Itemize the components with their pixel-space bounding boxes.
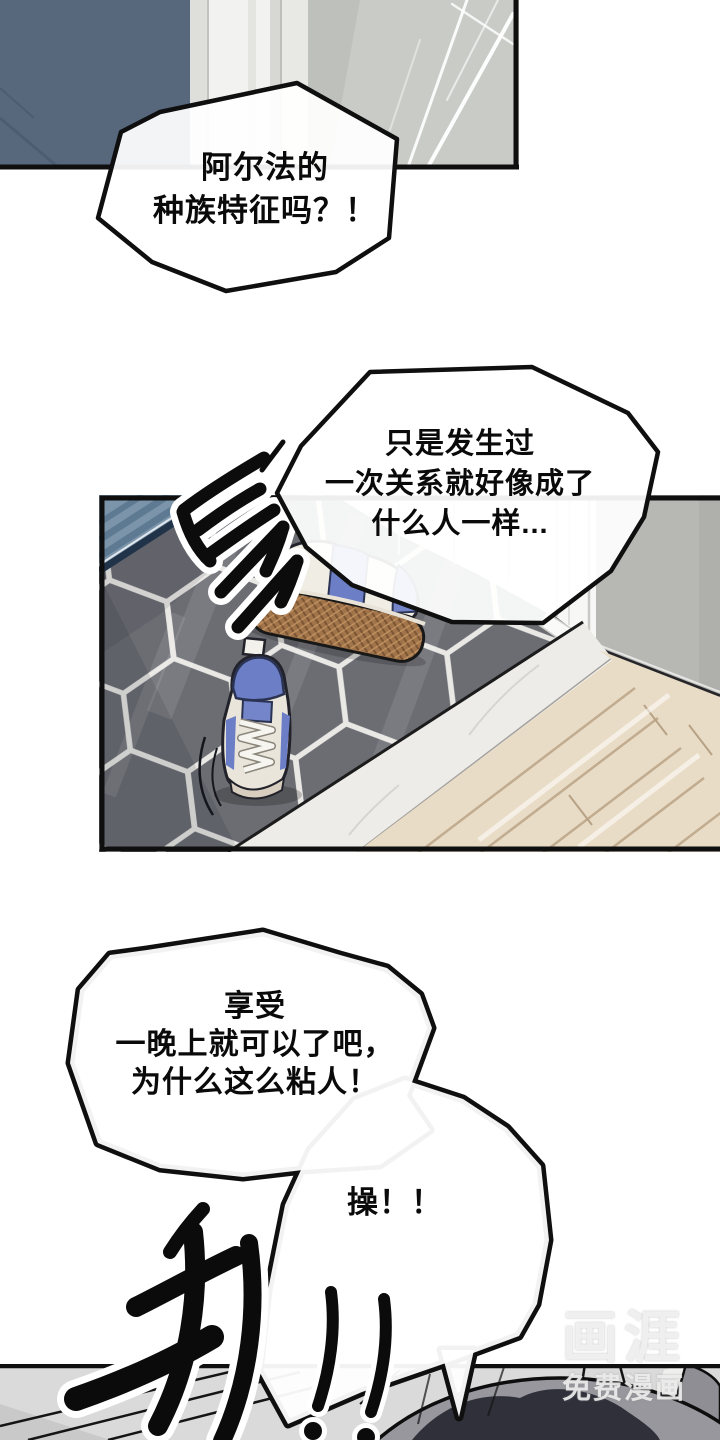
watermark-logo: 画涯 — [562, 1308, 720, 1368]
bubble-4-line-1: 操！！ — [315, 1184, 475, 1222]
bubble-4-text: 操！！ — [315, 1184, 475, 1222]
bubble-1-line-1: 阿尔法的 — [95, 146, 435, 189]
bubble-3-text: 享受 一晚上就可以了吧， 为什么这么粘人！ — [70, 988, 440, 1102]
bubble-2-line-1: 只是发生过 — [280, 424, 640, 464]
bubble-2-text: 只是发生过 一次关系就好像成了 什么人一样... — [280, 424, 640, 544]
watermark: 画涯 免费漫画 — [562, 1308, 720, 1406]
bubble-2-line-2: 一次关系就好像成了 — [280, 464, 640, 504]
bubble-3-line-3: 为什么这么粘人！ — [70, 1064, 440, 1102]
bubble-1-text: 阿尔法的 种族特征吗？！ — [95, 146, 435, 232]
bubble-3-line-2: 一晚上就可以了吧， — [70, 1026, 440, 1064]
bubble-3-line-1: 享受 — [70, 988, 440, 1026]
bubble-1-line-2: 种族特征吗？！ — [95, 189, 435, 232]
comic-page: 阿尔法的 种族特征吗？！ 只是发生过 一次关系就好像成了 什么人一样... 享受… — [0, 0, 720, 1440]
bubble-2-line-3: 什么人一样... — [280, 504, 640, 544]
watermark-tagline: 免费漫画 — [562, 1372, 720, 1406]
